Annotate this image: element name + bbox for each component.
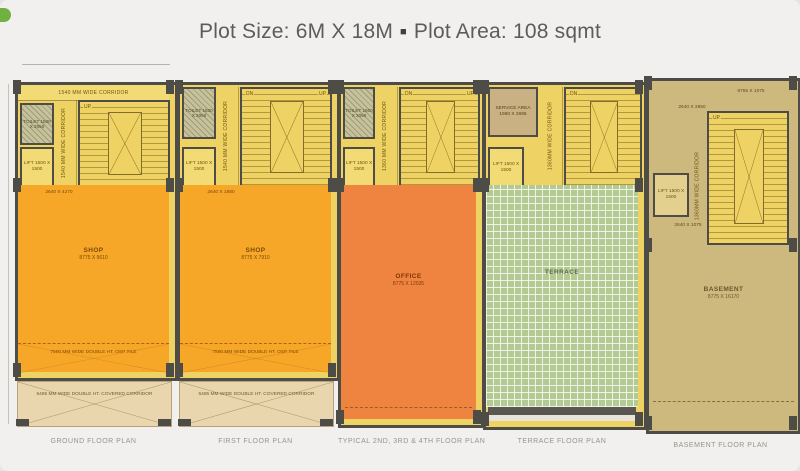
plan-outline: TOILET 1500 X 2050 LIFT 1500 X 1500 1360… <box>338 82 485 428</box>
plan-caption: GROUND FLOOR PLAN <box>15 438 172 445</box>
terrace-floor-plan: SERVICE AREA 1960 X 2695 LIFT 1500 X 150… <box>483 82 641 462</box>
stair-flight <box>270 101 304 174</box>
stair-flight <box>426 101 456 174</box>
room-label: SHOP 8775 X 9610 <box>18 247 169 261</box>
wall-column <box>635 178 643 192</box>
cross-lines-icon <box>591 102 618 173</box>
stair-flight <box>108 112 142 175</box>
cross-lines-icon <box>180 344 331 373</box>
service-area: SERVICE AREA 1960 X 2695 <box>488 87 538 137</box>
room-label: OFFICE 8775 X 12035 <box>341 273 476 287</box>
side-corridor-label: 1360 MM WIDE CORRIDOR <box>382 101 388 171</box>
typical-floor-plan: TOILET 1500 X 2050 LIFT 1500 X 1500 1360… <box>338 82 479 462</box>
floorplan-sheet: Plot Size: 6M X 18M■Plot Area: 108 sqmt … <box>0 0 800 471</box>
wall-column <box>635 80 643 94</box>
lift-label: LIFT 1500 X 1500 <box>490 162 522 174</box>
double-height-zone: 7500 MM WIDE DOUBLE HT. OSP TILE <box>180 343 331 373</box>
toilet-room: TOILET 1500 X 2050 <box>20 103 54 145</box>
room-name: SHOP <box>18 247 169 254</box>
stair-direction-label: DN <box>404 91 413 97</box>
dimension-line <box>22 64 170 65</box>
ground-floor-plan: 1540 MM WIDE CORRIDOR TOILET 1500 X 2050… <box>15 82 172 462</box>
room-label: TERRACE <box>486 269 638 276</box>
basement-floor-plan: 9755 X 1075 2640 X 2850 UP LIFT 1500 X 1… <box>646 78 795 462</box>
wall-column <box>175 363 183 377</box>
lift-label: LIFT 1500 X 1500 <box>184 161 214 173</box>
covered-corridor: 5485 MM WIDE DOUBLE HT. COVERED CORRIDOR <box>17 381 172 427</box>
wall-column <box>481 80 489 94</box>
toilet-label: TOILET 1500 X 2050 <box>345 108 373 119</box>
room-dimension: 8775 X 7910 <box>180 255 331 261</box>
plinth-strip <box>488 415 636 421</box>
double-height-note: 7500 MM WIDE DOUBLE HT. OSP TILE <box>30 350 157 356</box>
first-floor-plan: TOILET 1500 X 2050 LIFT 1500 X 1500 1540… <box>177 82 334 462</box>
top-corridor: 1540 MM WIDE CORRIDOR <box>18 85 169 101</box>
shop-area: 2640 X 1880 SHOP 8775 X 7910 7500 MM WID… <box>180 185 331 372</box>
side-corridor-label: 1360MM WIDE CORRIDOR <box>547 102 553 171</box>
lift-label: LIFT 1500 X 1500 <box>22 161 52 173</box>
lift-shaft: LIFT 1500 X 1500 <box>20 147 54 187</box>
cross-lines-icon <box>18 382 171 426</box>
wall-column <box>328 80 336 94</box>
room-label: SHOP 8775 X 7910 <box>180 247 331 261</box>
wall-column <box>13 178 21 192</box>
wall-column <box>166 80 174 94</box>
wall-column <box>789 76 797 90</box>
lift-shaft: LIFT 1500 X 1500 <box>182 147 216 187</box>
plan-outline: TOILET 1500 X 2050 LIFT 1500 X 1500 1540… <box>177 82 340 381</box>
plot-area-text: Plot Area: 108 sqmt <box>414 20 601 43</box>
room-dimension: 8775 X 12035 <box>341 281 476 287</box>
parapet-wall <box>488 407 636 415</box>
wall-column <box>175 178 183 192</box>
stair-direction-label: UP <box>318 91 327 97</box>
plan-outline: 1540 MM WIDE CORRIDOR TOILET 1500 X 2050… <box>15 82 178 381</box>
wall-column <box>635 412 643 426</box>
room-name: SHOP <box>180 247 331 254</box>
room-label: BASEMENT 8775 X 16170 <box>649 286 798 300</box>
dimension-text: 9755 X 1075 <box>715 89 787 94</box>
toilet-label: TOILET 1500 X 2050 <box>184 108 214 119</box>
zone-dimension: 2640 X 1880 <box>186 190 256 195</box>
stair-direction-label: DN <box>245 91 254 97</box>
plan-caption: BASEMENT FLOOR PLAN <box>646 442 795 449</box>
double-height-zone: 7500 MM WIDE DOUBLE HT. OSP TILE <box>18 343 169 373</box>
wall-column <box>13 363 21 377</box>
wall-column <box>178 419 191 426</box>
square-bullet-icon: ■ <box>400 26 407 38</box>
lift-label: LIFT 1500 X 1500 <box>345 161 373 173</box>
wall-column <box>328 363 336 377</box>
wall-column <box>644 416 652 430</box>
zone-dimension: 2640 X 4270 <box>24 190 94 195</box>
cross-lines-icon <box>109 113 141 174</box>
side-corridor: 1360 MM WIDE CORRIDOR <box>373 87 398 185</box>
wall-column <box>166 178 174 192</box>
wall-column <box>481 412 489 426</box>
page-title: Plot Size: 6M X 18M■Plot Area: 108 sqmt <box>0 20 800 44</box>
wall-column <box>336 80 344 94</box>
lift-label: LIFT 1500 X 1500 <box>655 189 687 201</box>
wall-column <box>789 238 797 252</box>
covered-corridor: 5485 MM WIDE DOUBLE HT. COVERED CORRIDOR <box>179 381 334 427</box>
cross-lines-icon <box>180 382 333 426</box>
wall-column <box>320 419 333 426</box>
side-corridor-label: 1540 MM WIDE CORRIDOR <box>61 107 67 177</box>
wall-column <box>166 363 174 377</box>
room-name: OFFICE <box>341 273 476 280</box>
plan-caption: FIRST FLOOR PLAN <box>177 438 334 445</box>
room-name: BASEMENT <box>649 286 798 293</box>
wall-column <box>644 76 652 90</box>
wall-column <box>473 178 481 192</box>
plan-caption: TERRACE FLOOR PLAN <box>483 438 641 445</box>
room-dimension: 8775 X 16170 <box>649 294 798 300</box>
service-area-label: SERVICE AREA 1960 X 2695 <box>490 106 536 118</box>
wall-column <box>789 416 797 430</box>
wall-column <box>16 419 29 426</box>
dimension-text: 2640 X 1075 <box>655 223 721 228</box>
stair-direction-label: UP <box>712 115 721 121</box>
wall-column <box>158 419 171 426</box>
stair-direction-label: DN <box>569 91 578 97</box>
lift-shaft: LIFT 1500 X 1500 <box>343 147 375 187</box>
staircase: DN <box>564 87 642 189</box>
stair-flight <box>590 101 619 174</box>
wall-column <box>13 80 21 94</box>
wall-column <box>336 178 344 192</box>
dimension-line <box>8 84 9 424</box>
wall-column <box>473 410 481 424</box>
shop-area: 2640 X 4270 SHOP 8775 X 9610 7500 MM WID… <box>18 185 169 372</box>
staircase: DN UP <box>399 87 480 189</box>
wall-column <box>336 410 344 424</box>
stair-flight <box>734 129 764 225</box>
toilet-room: TOILET 1500 X 2050 <box>182 87 216 139</box>
staircase: UP <box>78 100 170 189</box>
wall-column <box>175 80 183 94</box>
plan-outline: 9755 X 1075 2640 X 2850 UP LIFT 1500 X 1… <box>646 78 800 434</box>
ramp-line <box>653 401 794 402</box>
covered-corridor-note: 5485 MM WIDE DOUBLE HT. COVERED CORRIDOR <box>30 392 159 398</box>
office-area: OFFICE 8775 X 12035 <box>341 185 476 419</box>
side-corridor: 1540 MM WIDE CORRIDOR <box>214 87 239 185</box>
toilet-room: TOILET 1500 X 2050 <box>343 87 375 139</box>
dimension-text: 2640 X 2850 <box>657 105 727 110</box>
wall-column <box>328 178 336 192</box>
cross-lines-icon <box>735 130 763 224</box>
wall-column <box>481 178 489 192</box>
wall-column <box>473 80 481 94</box>
side-corridor: 1540 MM WIDE CORRIDOR <box>52 100 77 185</box>
side-corridor: 1360MM WIDE CORRIDOR <box>538 87 563 185</box>
cross-lines-icon <box>18 344 169 373</box>
corridor-label: 1540 MM WIDE CORRIDOR <box>58 90 128 96</box>
lift-shaft: LIFT 1500 X 1500 <box>488 147 524 189</box>
plan-caption: TYPICAL 2ND, 3RD & 4TH FLOOR PLAN <box>338 438 479 445</box>
toilet-label: TOILET 1500 X 2050 <box>22 119 52 130</box>
cross-lines-icon <box>271 102 303 173</box>
plan-outline: SERVICE AREA 1960 X 2695 LIFT 1500 X 150… <box>483 82 647 430</box>
double-height-note: 7500 MM WIDE DOUBLE HT. OSP TILE <box>192 350 319 356</box>
side-corridor-label: 1360MM WIDE CORRIDOR <box>694 152 700 221</box>
lift-shaft: LIFT 1500 X 1500 <box>653 173 689 217</box>
cross-lines-icon <box>427 102 455 173</box>
side-corridor-label: 1540 MM WIDE CORRIDOR <box>223 101 229 171</box>
plot-size-text: Plot Size: 6M X 18M <box>199 20 393 43</box>
room-dimension: 8775 X 9610 <box>18 255 169 261</box>
covered-corridor-note: 5485 MM WIDE DOUBLE HT. COVERED CORRIDOR <box>192 392 321 398</box>
terrace-area: TERRACE <box>486 185 638 407</box>
threshold-line <box>345 407 472 408</box>
stair-direction-label: UP <box>83 104 92 110</box>
staircase: DN UP <box>240 87 332 189</box>
room-name: TERRACE <box>486 269 638 276</box>
wall-column <box>644 238 652 252</box>
